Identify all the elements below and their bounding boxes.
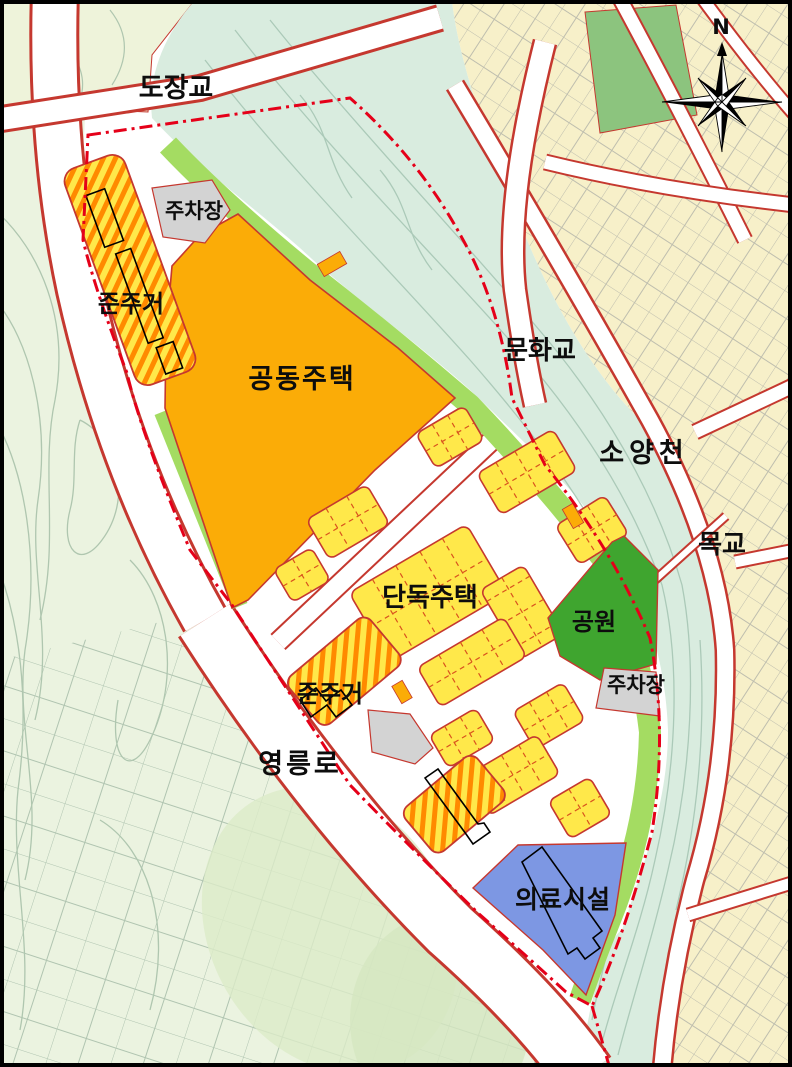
zone-parking-small — [368, 710, 433, 764]
label-semi-res-mid: 준주거 — [297, 680, 363, 708]
compass-north-label: N — [712, 15, 730, 39]
land-use-plan-map: 도장교 주차장 준주거 공동주택 문화교 소양천 목교 단독주택 공원 주차장 … — [0, 0, 792, 1067]
label-parking-top: 주차장 — [165, 199, 223, 223]
label-dojanggyo: 도장교 — [139, 73, 214, 104]
label-parking-right: 주차장 — [607, 673, 665, 697]
map-canvas: 도장교 주차장 준주거 공동주택 문화교 소양천 목교 단독주택 공원 주차장 … — [0, 0, 792, 1067]
label-munhwagyo: 문화교 — [504, 336, 576, 366]
label-apartment: 공동주택 — [248, 364, 355, 395]
label-medical: 의료시설 — [515, 885, 611, 914]
label-semi-res-left: 준주거 — [98, 290, 164, 318]
label-mokgyo: 목교 — [698, 530, 746, 560]
label-detached: 단독주택 — [382, 583, 478, 613]
label-soyangcheon: 소양천 — [599, 438, 689, 469]
label-yeongneungro: 영릉로 — [258, 749, 342, 780]
label-park: 공원 — [572, 608, 616, 636]
